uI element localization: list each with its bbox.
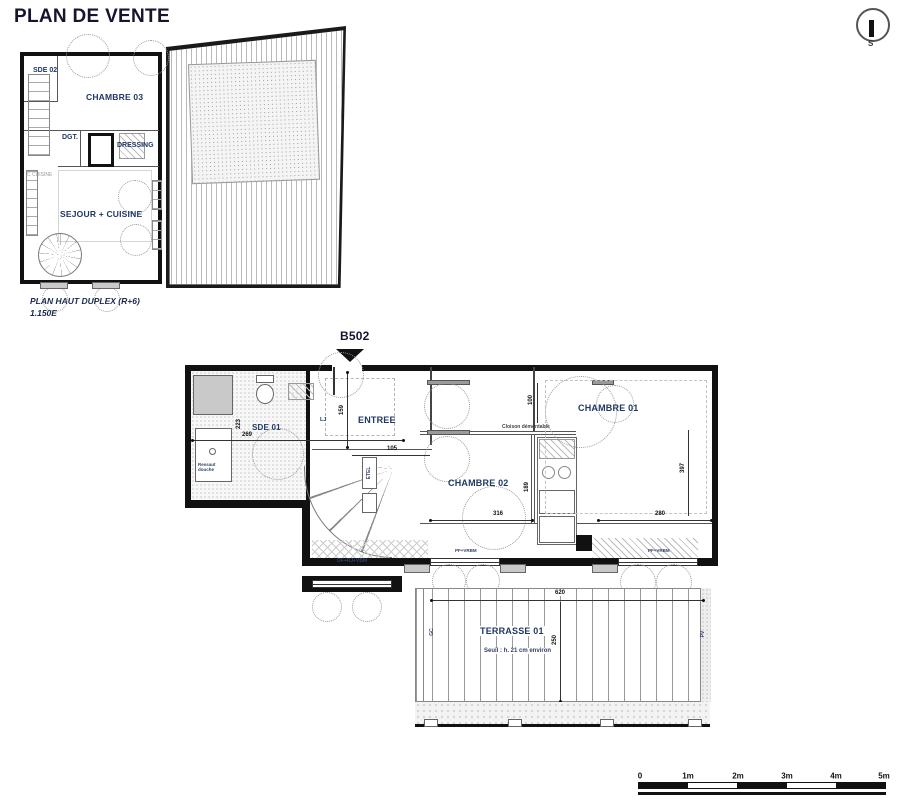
room-label-sde02: SDE 02 [33,67,57,74]
wall [185,500,310,508]
dimension-line [560,602,561,702]
threshold-hatch [312,540,428,558]
room-label-sejour: SEJOUR + CUISINE [60,209,142,219]
upper-plan-caption: PLAN HAUT DUPLEX (R+6) [30,296,140,306]
wc-tank [256,375,274,383]
room-label-chambre02: CHAMBRE 02 [448,478,509,488]
compass-south-label: S [868,39,873,48]
dimension-line [352,455,430,456]
entree-dashed-zone [325,378,395,436]
post-base [688,719,702,727]
dimension-line [347,372,348,448]
dim-100: 100 [528,395,534,405]
page-title: PLAN DE VENTE [14,6,170,28]
annotation-ressaut-douche: Ressaut douche [198,462,226,472]
upper-window-bottom-1 [40,282,68,289]
dim-280: 280 [655,511,665,517]
dim-189: 189 [524,482,530,492]
dimension-line [537,383,538,423]
annotation-window-left: OF+RJ+VBM [337,558,367,564]
furniture-circle [462,486,526,550]
dim-159: 159 [339,405,345,415]
dimension-line [430,520,533,521]
door-arc [424,383,470,429]
wc [256,384,274,404]
room-label-chambre01: CHAMBRE 01 [578,403,639,413]
upper-roof-skylight [188,60,320,184]
fridge [539,516,575,543]
dimension-line [598,520,712,521]
room-label-entree: ENTREE [358,415,396,425]
door-arc [120,224,152,256]
demountable-partition [531,435,535,523]
dimension-line [192,440,404,441]
door-arc [133,40,169,76]
wall [698,558,718,566]
threshold-hatch [592,538,698,558]
door-arc [424,436,470,482]
plan-de-vente-sheet: PLAN DE VENTE S SDE 02 CHAMBRE 03 DGT. D… [0,0,906,800]
dim-316: 316 [493,511,503,517]
dimension-line [688,430,689,516]
room-label-chambre03: CHAMBRE 03 [86,92,143,102]
closet [362,493,377,513]
chambre01-dashed-zone [545,380,707,514]
shutter [500,564,526,573]
window-left [312,580,392,588]
wall-stub [576,535,592,551]
dimension-line [432,600,704,601]
kitchen-counter [26,170,38,236]
unit-label: B502 [340,329,370,343]
scale-label-5m: 5m [878,772,890,781]
sde02-fixtures [28,74,50,156]
dim-397: 397 [680,463,686,473]
upper-window-right-2 [152,220,162,250]
post-base [424,719,438,727]
annotation-c-cuisine: C CUISINE [27,172,52,178]
scale-label-0: 0 [638,772,642,781]
terrace-edge [415,724,710,727]
scale-label-2m: 2m [732,772,744,781]
annotation-window-mid: PF+VRBM [455,548,477,553]
shutter [404,564,430,573]
annotation-lj: LJ [320,417,326,423]
post-base [600,719,614,727]
scale-label-4m: 4m [830,772,842,781]
door-arc [352,592,382,622]
washbasin [288,383,314,400]
annotation-etel: ETEL [366,467,372,480]
door-arc [312,592,342,622]
upper-window-bottom-2 [92,282,120,289]
scale-bar [638,782,886,789]
upper-partition [80,130,81,166]
shutter [592,564,618,573]
room-label-sde01: SDE 01 [252,423,281,432]
upper-partition [57,56,58,102]
annotation-cloison: Cloison démontable [502,425,550,430]
dim-223: 223 [236,419,242,429]
dim-250: 250 [552,635,558,645]
drain-icon [209,448,216,455]
upper-window-right-1 [152,180,162,210]
annotation-window-right: PF+VRBM [648,548,670,553]
scale-label-1m: 1m [682,772,694,781]
terrace-planter-band [415,702,710,724]
wall [712,365,718,566]
annotation-pv: PV [700,631,706,638]
terrace-rail [423,588,424,702]
shower-tray [195,428,232,482]
door-leaf [427,430,470,435]
room-label-terrasse: TERRASSE 01 [478,626,546,636]
spiral-stair-upper [38,233,82,277]
room-label-dressing: DRESSING [117,142,154,149]
post-base [508,719,522,727]
upper-plan-scale: 1.150E [30,308,57,318]
compass-needle-icon [869,20,874,37]
dim-105: 105 [387,446,397,452]
upper-closet [88,133,114,167]
dim-620: 620 [554,590,566,596]
dim-269: 269 [242,432,252,438]
scale-bar-base [638,792,886,795]
partition [312,449,432,450]
door-arc [66,34,110,78]
annotation-seuil: Seuil : h. 21 cm environ [482,648,553,654]
shower [193,375,233,415]
annotation-gc: GC [429,628,435,636]
room-label-dgt: DGT. [62,134,78,141]
terrace-separator [700,588,711,702]
door-arc [252,428,304,480]
scale-label-3m: 3m [781,772,793,781]
terrace-decking [415,588,710,702]
